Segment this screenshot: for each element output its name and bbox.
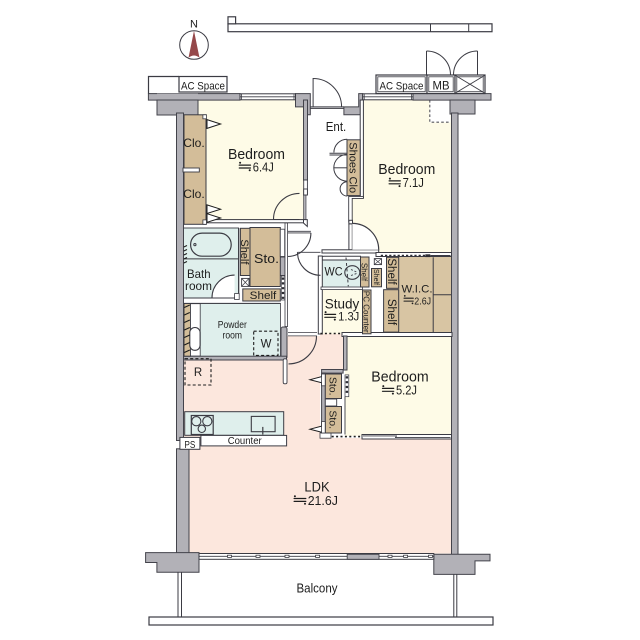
svg-text:N: N — [190, 19, 198, 31]
svg-text:Shelf: Shelf — [372, 269, 379, 285]
svg-text:Shelf: Shelf — [385, 258, 397, 285]
svg-text:Counter: Counter — [228, 436, 263, 447]
svg-text:Clo.: Clo. — [183, 136, 205, 150]
svg-text:Shelf: Shelf — [250, 290, 278, 302]
svg-text:PS: PS — [184, 439, 195, 451]
svg-text:Shelf: Shelf — [385, 299, 397, 326]
svg-text:1.3J: 1.3J — [338, 310, 359, 324]
svg-text:Shoes Clo: Shoes Clo — [347, 142, 359, 193]
svg-text:AC Space: AC Space — [380, 80, 424, 92]
svg-text:W: W — [261, 339, 272, 351]
svg-text:Sto.: Sto. — [326, 410, 338, 429]
svg-text:WC: WC — [325, 264, 343, 278]
svg-text:Clo.: Clo. — [183, 187, 205, 201]
svg-text:7.1J: 7.1J — [403, 176, 424, 190]
svg-text:MB: MB — [433, 80, 450, 92]
svg-text:Shelf: Shelf — [360, 263, 369, 282]
svg-text:Sto.: Sto. — [254, 251, 279, 266]
svg-text:Sto.: Sto. — [326, 377, 338, 396]
svg-text:AC Space: AC Space — [181, 80, 225, 92]
svg-text:W.I.C.: W.I.C. — [402, 284, 433, 296]
svg-text:2.6J: 2.6J — [414, 296, 431, 308]
svg-text:PC Counter: PC Counter — [362, 291, 371, 333]
svg-text:room: room — [185, 279, 212, 293]
svg-text:Ent.: Ent. — [326, 120, 347, 134]
svg-text:R: R — [194, 367, 202, 379]
svg-text:room: room — [223, 329, 243, 341]
svg-text:Shelf: Shelf — [238, 239, 250, 265]
svg-text:6.4J: 6.4J — [253, 160, 274, 174]
svg-text:Balcony: Balcony — [297, 581, 339, 595]
svg-text:5.2J: 5.2J — [396, 384, 417, 398]
svg-text:21.6J: 21.6J — [308, 493, 338, 508]
